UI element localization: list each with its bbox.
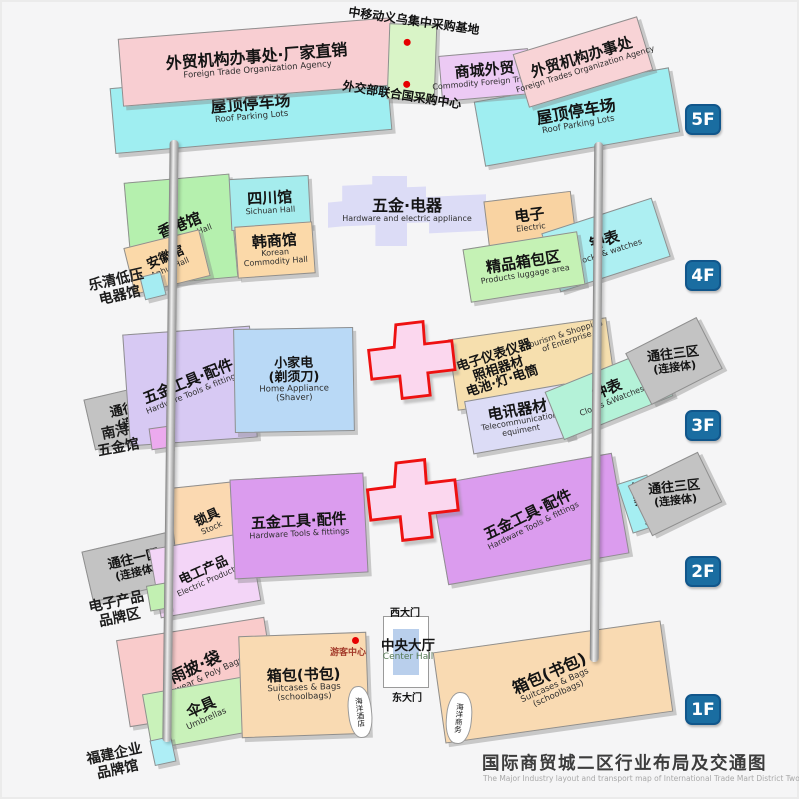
map-title-cn: 国际商贸城二区行业布局及交通图 — [482, 750, 767, 775]
side-label-leqing-lowvoltage-hall: 乐清低压 电器馆 — [87, 266, 149, 310]
map-title-en: The Major Industry layout and transport … — [483, 774, 799, 783]
connector-label-sub: (连接体) — [654, 493, 698, 509]
zone-3f-home-appliance-shaver: 小家电 (剃须刀) Home Appliance (Shaver) — [233, 327, 355, 433]
floor-badge-1f: 1F — [685, 694, 721, 725]
zone-4f-hardware-electric-appliance: 五金·电器 Hardware and electric appliance — [328, 176, 486, 246]
zone-label-cn: 五金·电器 — [372, 198, 442, 215]
label-west-gate: 西大门 — [390, 604, 420, 619]
center-hall-en: Center Hall — [366, 653, 450, 662]
zone-label-en: Commodity Hall — [244, 256, 308, 269]
ocean-business-label: 海洋商务 — [452, 703, 466, 734]
side-label-fujian-enterprise-brand-hall: 福建企业 品牌馆 — [85, 741, 146, 784]
ocean-hotel-label: 海洋酒店 — [353, 697, 367, 728]
zone-4f-korean-commodity-hall: 韩商馆 Korean Commodity Hall — [234, 221, 315, 278]
zone-2f-hardware-tools-fittings-west: 五金工具·配件 Hardware Tools & fittings — [229, 473, 368, 580]
floor-badge-4f: 4F — [685, 260, 721, 291]
label-center-hall: 中央大厅 Center Hall — [366, 639, 450, 663]
connector-label-sub: (连接体) — [653, 359, 697, 376]
sky-bridge-3f — [360, 320, 462, 400]
side-label-nanxun-hardware-hall: 南浔 五金馆 — [93, 420, 140, 460]
floor-badge-2f: 2F — [685, 556, 721, 587]
floor-badge-3f: 3F — [685, 410, 721, 441]
label-east-gate: 东大门 — [392, 689, 422, 704]
floor-badge-5f: 5F — [685, 104, 721, 135]
center-hall-cn: 中央大厅 — [366, 639, 450, 653]
procurement-marker-dot — [404, 39, 411, 46]
label-visitor-center: 游客中心 — [330, 645, 366, 658]
trade-mart-district2-map: 外贸机构办事处·厂家直销 Foreign Trade Organization … — [0, 0, 799, 799]
zone-label-en: Sichuan Hall — [245, 205, 295, 216]
visitor-center-marker-dot — [352, 637, 359, 644]
sky-bridge-2f — [362, 458, 462, 542]
zone-label-en: Electric — [516, 222, 546, 234]
zone-4f-products-luggage-area: 精品箱包区 Products luggage area — [462, 231, 585, 302]
zone-label-en: Hardware and electric appliance — [342, 215, 472, 223]
zone-label-en: (Shaver) — [276, 393, 313, 403]
zone-label-en: (schoolbags) — [277, 692, 332, 703]
